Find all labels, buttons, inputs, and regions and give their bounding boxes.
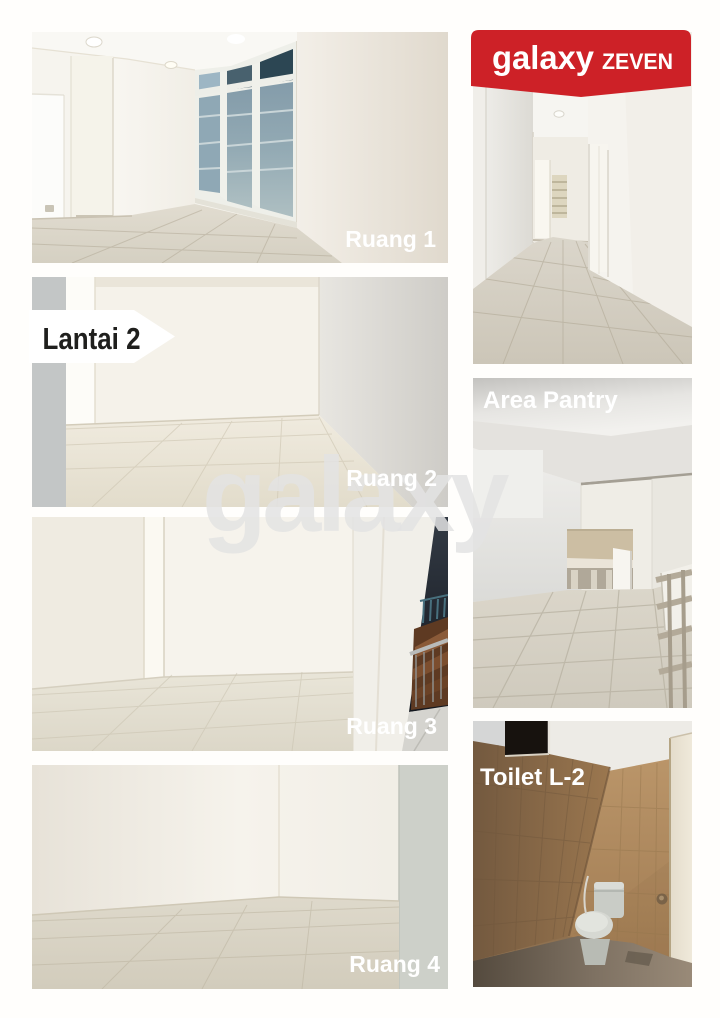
svg-text:ZEVEN: ZEVEN (602, 49, 673, 74)
svg-text:galaxy: galaxy (492, 39, 595, 76)
svg-text:Lantai 2: Lantai 2 (43, 321, 141, 356)
